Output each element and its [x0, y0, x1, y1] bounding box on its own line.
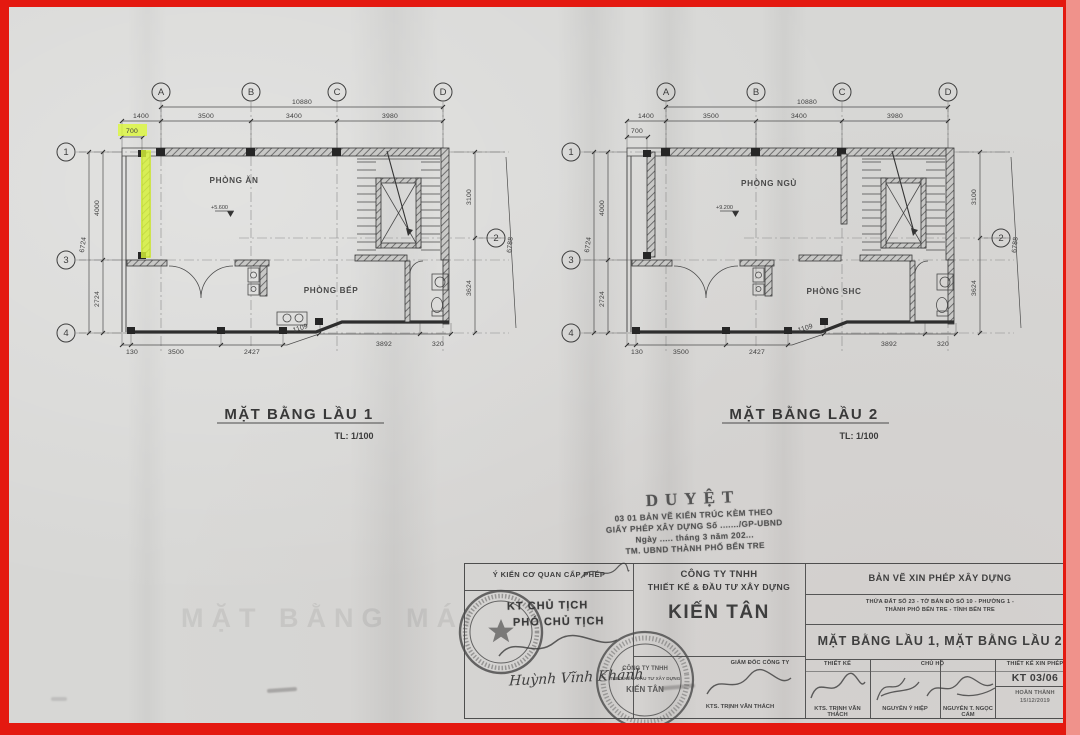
dim-right-total: 6788 [1011, 237, 1019, 253]
scan-smudge [51, 697, 67, 701]
signatures-row [807, 670, 997, 708]
dim-seg2: 3500 [703, 113, 719, 120]
grid-col-b: B [753, 87, 759, 98]
grid-col-c: C [839, 87, 846, 98]
dim-b6: 320 [937, 341, 949, 348]
dim-right1: 3100 [971, 189, 978, 205]
grid-row-1: 1 [63, 147, 68, 158]
grid-col-d: D [440, 87, 447, 98]
level-marker: +5.600 [211, 205, 228, 211]
dim-right-total: 6788 [506, 237, 514, 253]
dim-left1: 4000 [94, 200, 101, 216]
scan-smudge [267, 687, 297, 693]
divider [805, 594, 1063, 595]
company-seal-icon: CÔNG TY TNHH THIẾT KẾ & ĐẦU TƯ XÂY DỰNG … [587, 622, 703, 723]
dim-left2: 2724 [94, 291, 101, 307]
owner-name-2: NGUYỄN T. NGỌC CẨM [938, 706, 998, 718]
sheet-no-header: THIẾT KẾ XIN PHÉP [995, 661, 1063, 667]
dim-b3: 2427 [244, 349, 260, 356]
dim-b1: 130 [631, 349, 643, 356]
dim-b5: 3892 [376, 341, 392, 348]
room-label-dining: PHÒNG ĂN [210, 174, 259, 185]
kt-chu-tich-line: KT CHỦ TỊCH [507, 599, 588, 612]
dim-right2: 3624 [971, 280, 978, 296]
company-name: KIẾN TÂN [633, 602, 805, 624]
designer-name: KTS. TRỊNH VĂN THÁCH [805, 706, 870, 718]
dim-b6: 320 [432, 341, 444, 348]
dim-left1: 4000 [599, 200, 606, 216]
parcel-line1: THỬA ĐẤT SỐ 23 - TỜ BẢN ĐỒ SỐ 10 - PHƯỜN… [805, 599, 1063, 605]
dim-seg1: 1400 [133, 113, 149, 120]
grid-col-a: A [158, 87, 165, 98]
grid-col-c: C [334, 87, 341, 98]
designer-header: THIẾT KẾ [805, 661, 870, 667]
dim-b2: 3500 [168, 349, 184, 356]
dim-left-total: 6724 [584, 236, 593, 253]
floor-plan-level-2: A B C D 1 3 4 2 10880 1400 3500 3400 398… [544, 62, 1049, 452]
plan-title: MẶT BẰNG LẦU 1 [224, 405, 373, 423]
dim-right2: 3624 [466, 280, 473, 296]
grid-row-4: 4 [63, 328, 68, 339]
dim-right1: 3100 [466, 189, 473, 205]
photo-pink-edge [1066, 0, 1080, 735]
grid-row-2: 2 [998, 233, 1003, 244]
grid-row-3: 3 [568, 255, 573, 266]
company-line2: THIẾT KẾ & ĐẦU TƯ XÂY DỰNG [633, 582, 805, 592]
dim-total-top: 10880 [797, 99, 817, 106]
sheet-number: KT 03/06 [995, 672, 1063, 684]
dim-b1: 130 [126, 349, 138, 356]
room-label-kitchen: PHÒNG BẾP [304, 284, 359, 295]
dim-b3: 2427 [749, 349, 765, 356]
grid-col-b: B [248, 87, 254, 98]
dim-seg1: 1400 [638, 113, 654, 120]
approval-stamp: DUYỆT 03 01 BẢN VẼ KIẾN TRÚC KÈM THEO GI… [560, 483, 829, 559]
director-signature [703, 666, 795, 702]
dim-offset-700: 700 [126, 128, 138, 135]
divider [995, 686, 1063, 687]
floor-plan-level-1: A B C D 1 3 4 2 10880 1400 3500 3400 398… [39, 62, 544, 452]
grid-row-3: 3 [63, 255, 68, 266]
dim-left-total: 6724 [79, 236, 88, 253]
grid-labels: A B C D 1 3 4 2 [568, 87, 1003, 339]
dim-seg4: 3980 [887, 113, 903, 120]
shc-wall [799, 255, 841, 261]
highlighted-wall [141, 150, 151, 258]
divider [805, 659, 1063, 660]
room-label-bedroom: PHÒNG NGỦ [741, 177, 797, 188]
title-block: Ý KIẾN CƠ QUAN CẤP PHÉP KT CHỦ TỊCH PHÓ … [464, 563, 1063, 719]
grid-col-d: D [945, 87, 952, 98]
company-seal-line1: CÔNG TY TNHH [622, 664, 668, 672]
company-seal-line2: THIẾT KẾ & ĐẦU TƯ XÂY DỰNG [610, 675, 681, 681]
company-line1: CÔNG TY TNHH [633, 569, 805, 580]
dim-left2: 2724 [599, 291, 606, 307]
dim-b5: 3892 [881, 341, 897, 348]
grid-row-1: 1 [568, 147, 573, 158]
room-label-shc: PHÒNG SHC [807, 285, 862, 296]
bleed-through-text: MẶT BẰNG MÁI [181, 603, 479, 634]
plan-scale: TL: 1/100 [334, 431, 373, 441]
dim-seg2: 3500 [198, 113, 214, 120]
dim-b2: 3500 [673, 349, 689, 356]
completion-label: HOÀN THÀNH [995, 690, 1063, 696]
owner-header: CHỦ HỘ [870, 661, 995, 667]
photo-red-frame: A B C D 1 3 4 2 10880 1400 3500 3400 398… [0, 0, 1080, 735]
grid-row-2: 2 [493, 233, 498, 244]
owner-name-1: NGUYỄN Ỷ HIỆP [870, 706, 940, 712]
drawing-sheet: A B C D 1 3 4 2 10880 1400 3500 3400 398… [9, 7, 1063, 723]
completion-date: 15/12/2019 [995, 698, 1063, 704]
plan-scale: TL: 1/100 [839, 431, 878, 441]
dim-offset-700: 700 [631, 128, 643, 135]
grid-row-4: 4 [568, 328, 573, 339]
dim-seg3: 3400 [791, 113, 807, 120]
company-seal-name: KIẾN TÂN [626, 684, 664, 694]
grid-col-a: A [663, 87, 670, 98]
divider [805, 624, 1063, 625]
drawing-type: BẢN VẼ XIN PHÉP XÂY DỰNG [805, 573, 1063, 583]
bedroom-partition-wall [841, 154, 847, 224]
level-marker: +9.200 [716, 205, 733, 211]
plan-title: MẶT BẰNG LẦU 2 [729, 405, 878, 423]
handwritten-flourish [577, 560, 631, 586]
kitchen-stove [277, 312, 307, 325]
dim-seg3: 3400 [286, 113, 302, 120]
dim-total-top: 10880 [292, 99, 312, 106]
parcel-line2: THÀNH PHỐ BẾN TRE - TỈNH BẾN TRE [805, 607, 1063, 613]
sheet-title: MẶT BẰNG LẦU 1, MẶT BẰNG LẦU 2 [805, 634, 1063, 648]
dim-seg4: 3980 [382, 113, 398, 120]
